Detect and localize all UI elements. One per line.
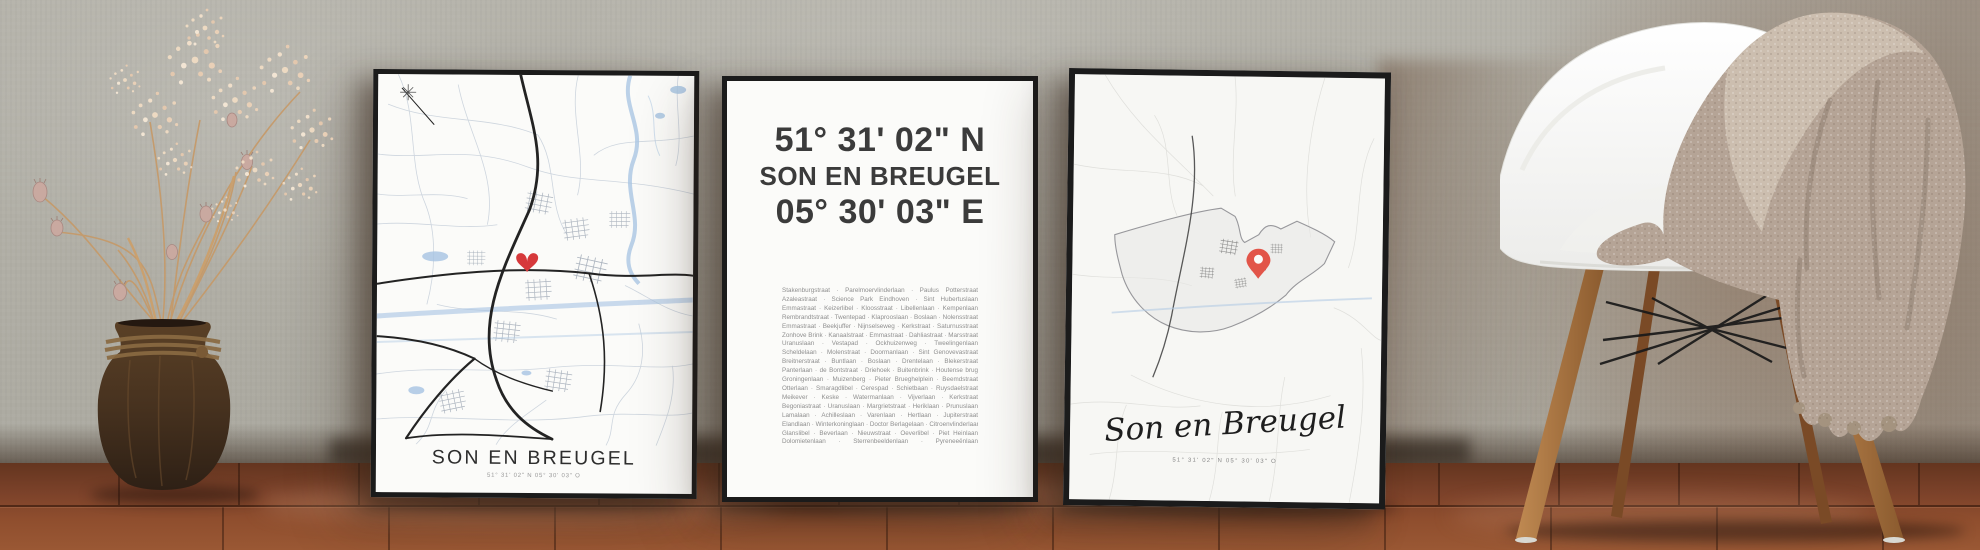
street-line: Begoniastraat · Uranuslaan · Margrietstr… — [782, 403, 978, 412]
street-line: Emmastraat · Beekjuffer · Nijnselseweg ·… — [782, 323, 978, 332]
scene: SON EN BREUGEL 51° 31' 02" N 05° 30' 03"… — [0, 0, 1980, 550]
poster-map-right: Son en Breugel 51° 31' 02" N 05° 30' 03"… — [1063, 68, 1391, 509]
vase-opening — [118, 319, 206, 327]
poster-left-title: SON EN BREUGEL — [376, 446, 692, 471]
street-line: Stakenburgstraat · Parelmoervlinderlaan … — [782, 287, 978, 296]
dried-stems — [42, 92, 310, 332]
city-map-graphic — [376, 74, 694, 446]
poster-coordinates-inner: 51° 31' 02" N SON EN BREUGEL 05° 30' 03"… — [727, 81, 1033, 497]
street-line: Breitnerstraat · Buntlaan · Boslaan · Dr… — [782, 358, 978, 367]
longitude-text: 05° 30' 03" E — [727, 193, 1033, 231]
poster-map-right-inner: Son en Breugel 51° 31' 02" N 05° 30' 03"… — [1069, 74, 1385, 503]
latitude-text: 51° 31' 02" N — [727, 121, 1033, 159]
street-line: Meikever · Keske · Watermanlaan · Vijver… — [782, 394, 978, 403]
street-line: Scheldelaan · Molenstraat · Doormanlaan … — [782, 349, 978, 358]
pod-crowns — [34, 150, 253, 284]
poster-coordinates-middle: 51° 31' 02" N SON EN BREUGEL 05° 30' 03"… — [722, 76, 1038, 502]
dried-flower-vase — [0, 0, 360, 550]
street-line: Panterlaan · de Bontstraat · Driehoek · … — [782, 367, 978, 376]
babys-breath — [109, 9, 333, 223]
rope-knot — [196, 346, 208, 358]
poster-map-left-inner: SON EN BREUGEL 51° 31' 02" N 05° 30' 03"… — [376, 74, 695, 494]
street-line: Groningenlaan · Muizenberg · Pieter Brue… — [782, 376, 978, 385]
city-name-text: SON EN BREUGEL — [727, 161, 1033, 191]
street-line: Rembrandtstraat · Twentepad · Klaproosla… — [782, 314, 978, 323]
street-name-list: Stakenburgstraat · Parelmoervlinderlaan … — [782, 287, 978, 447]
poster-map-left: SON EN BREUGEL 51° 31' 02" N 05° 30' 03"… — [371, 69, 700, 499]
street-line: Elandlaan · Winterkoninglaan · Doctor Be… — [782, 421, 978, 430]
street-line: Glanslibel · Beverlaan · Nieuwstraat · O… — [782, 430, 978, 439]
street-line: Zonhove Brink · Kanaalstraat · Emmastraa… — [782, 332, 978, 341]
thick-stems — [128, 176, 234, 331]
street-line: Lamalaan · Achilleslaan · Varenlaan · He… — [782, 412, 978, 421]
street-line: Emmastraat · Keizerlibel · Kloosstraat ·… — [782, 305, 978, 314]
street-line: Otterlaan · Smaragdlibel · Cerespad · Sc… — [782, 385, 978, 394]
street-line: Uranuslaan · Vestapad · Ockhuizenweg · T… — [782, 340, 978, 349]
poster-left-coordinates: 51° 31' 02" N 05° 30' 03" O — [376, 472, 692, 480]
street-line: Azaleastraat · Science Park Eindhoven · … — [782, 296, 978, 305]
street-line: Dolomietenlaan · Sterrenbeeldenlaan · Py… — [782, 438, 978, 447]
eames-chair — [1500, 0, 1980, 550]
